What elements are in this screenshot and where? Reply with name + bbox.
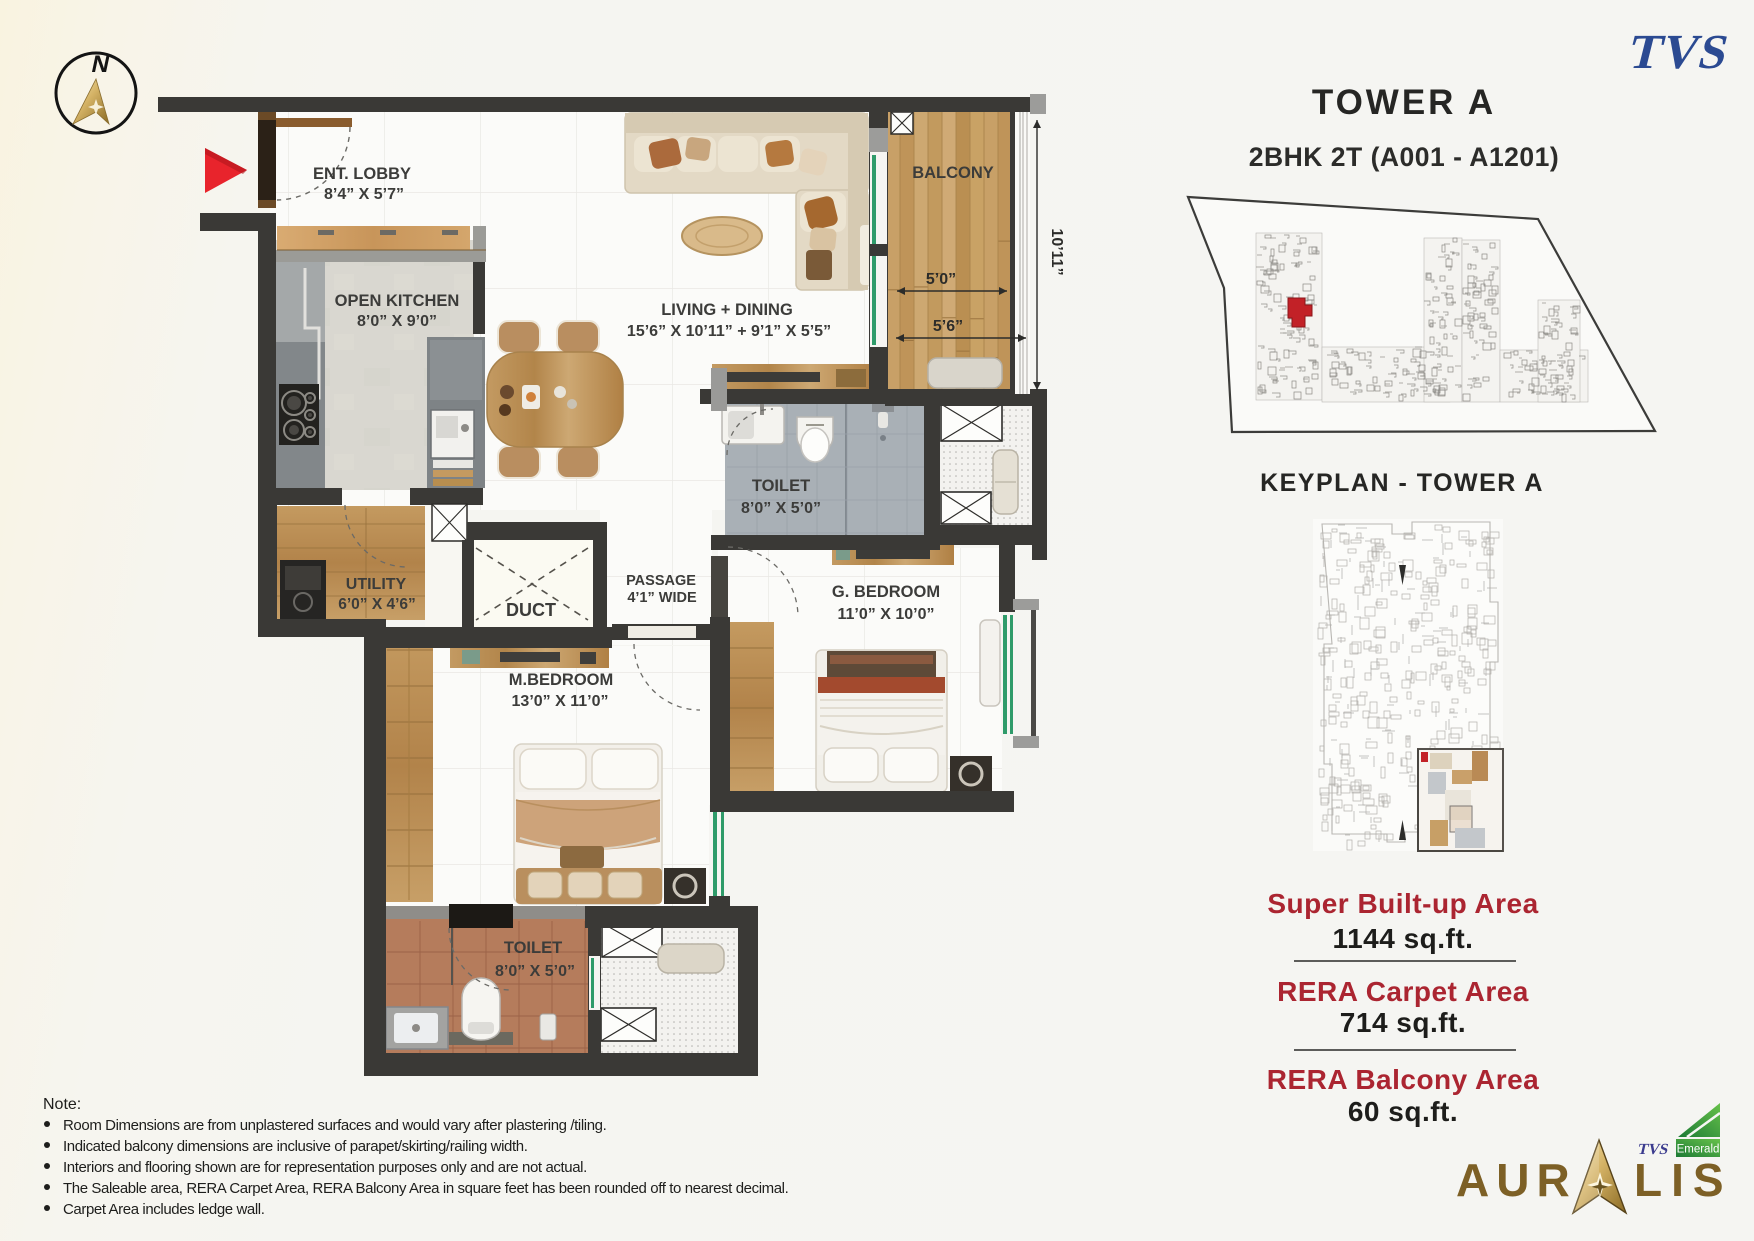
- svg-text:4’1” WIDE: 4’1” WIDE: [627, 590, 697, 606]
- svg-text:The Saleable area, RERA Carpet: The Saleable area, RERA Carpet Area, RER…: [63, 1180, 788, 1197]
- svg-text:G. BEDROOM: G. BEDROOM: [832, 583, 940, 601]
- svg-text:ENT. LOBBY: ENT. LOBBY: [313, 165, 411, 183]
- svg-text:Indicated balcony dimensions a: Indicated balcony dimensions are inclusi…: [63, 1138, 527, 1155]
- svg-text:OPEN KITCHEN: OPEN KITCHEN: [335, 292, 460, 310]
- svg-text:BALCONY: BALCONY: [912, 164, 994, 182]
- svg-text:M.BEDROOM: M.BEDROOM: [509, 671, 614, 689]
- svg-text:60 sq.ft.: 60 sq.ft.: [1348, 1096, 1458, 1127]
- svg-text:714 sq.ft.: 714 sq.ft.: [1340, 1007, 1466, 1038]
- svg-text:Emerald: Emerald: [1677, 1144, 1720, 1156]
- svg-text:8’0” X 5’0”: 8’0” X 5’0”: [495, 963, 575, 980]
- svg-text:UTILITY: UTILITY: [346, 576, 407, 593]
- svg-text:5’6”: 5’6”: [933, 318, 963, 335]
- svg-text:15’6” X 10’11” + 9’1” X 5’5”: 15’6” X 10’11” + 9’1” X 5’5”: [627, 323, 831, 340]
- svg-text:8’0” X 5’0”: 8’0” X 5’0”: [741, 500, 821, 517]
- svg-text:TOWER A: TOWER A: [1312, 83, 1496, 122]
- svg-text:8’0” X 9’0”: 8’0” X 9’0”: [357, 313, 437, 330]
- svg-text:RERA Balcony Area: RERA Balcony Area: [1267, 1064, 1540, 1095]
- svg-text:Room Dimensions are from unpla: Room Dimensions are from unplastered sur…: [63, 1117, 606, 1134]
- svg-text:RERA Carpet Area: RERA Carpet Area: [1277, 976, 1529, 1007]
- svg-text:Super Built-up Area: Super Built-up Area: [1267, 888, 1538, 919]
- svg-text:6’0” X 4’6”: 6’0” X 4’6”: [338, 596, 416, 613]
- svg-text:8’4” X 5’7”: 8’4” X 5’7”: [324, 186, 404, 203]
- svg-text:TOILET: TOILET: [752, 477, 810, 495]
- svg-text:TVS: TVS: [1623, 25, 1735, 79]
- svg-text:TOILET: TOILET: [504, 939, 562, 957]
- svg-text:N: N: [89, 51, 112, 78]
- svg-text:KEYPLAN - TOWER A: KEYPLAN - TOWER A: [1260, 469, 1544, 497]
- svg-text:11’0” X 10’0”: 11’0” X 10’0”: [838, 606, 935, 623]
- svg-text:DUCT: DUCT: [506, 600, 556, 620]
- svg-text:LIVING + DINING: LIVING + DINING: [661, 301, 793, 319]
- svg-text:PASSAGE: PASSAGE: [626, 573, 696, 589]
- svg-text:2BHK 2T (A001 - A1201): 2BHK 2T (A001 - A1201): [1249, 142, 1559, 172]
- svg-text:Note:: Note:: [43, 1096, 81, 1113]
- svg-text:Carpet Area includes ledge wal: Carpet Area includes ledge wall.: [63, 1201, 265, 1218]
- svg-text:1144 sq.ft.: 1144 sq.ft.: [1333, 923, 1474, 954]
- svg-text:10’11”: 10’11”: [1048, 228, 1065, 275]
- svg-text:5’0”: 5’0”: [926, 271, 956, 288]
- svg-text:AUR: AUR: [1456, 1154, 1577, 1206]
- svg-text:LIS: LIS: [1634, 1154, 1733, 1206]
- svg-text:Interiors and flooring shown a: Interiors and flooring shown are for rep…: [63, 1159, 587, 1176]
- svg-text:TVS: TVS: [1636, 1141, 1670, 1158]
- svg-text:13’0” X 11’0”: 13’0” X 11’0”: [512, 693, 609, 710]
